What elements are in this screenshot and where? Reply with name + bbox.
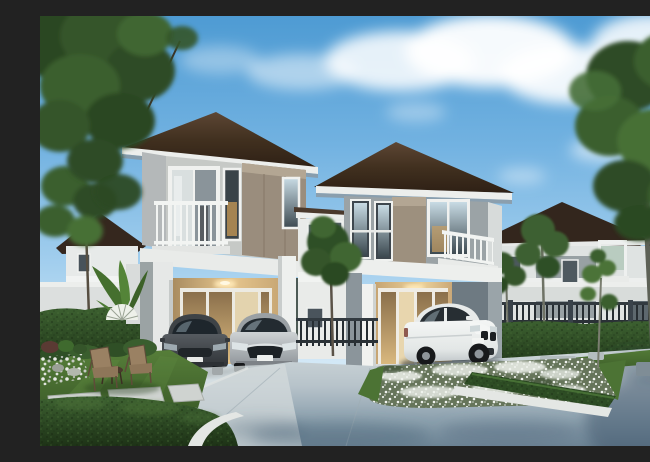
license-plate xyxy=(257,355,273,362)
house-rendering xyxy=(40,16,650,446)
balcony-railing xyxy=(152,201,230,254)
metal-fence-center xyxy=(296,318,378,346)
license-plate xyxy=(472,338,484,344)
upper-side-window xyxy=(283,178,299,228)
bg-window xyxy=(562,260,578,284)
rock-garden xyxy=(40,340,90,386)
right-house-taupe-panel xyxy=(392,197,426,264)
